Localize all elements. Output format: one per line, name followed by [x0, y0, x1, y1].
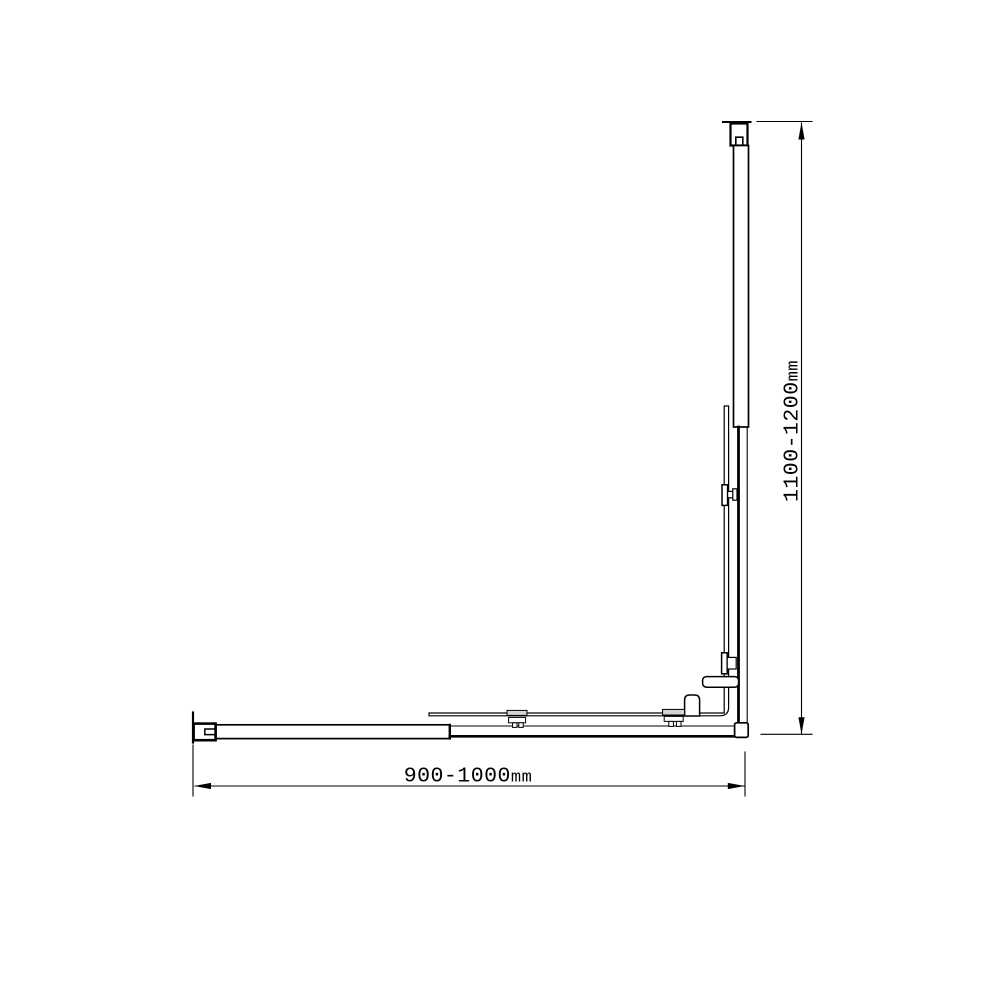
bottom-glass-clamp-right-pad: [663, 709, 685, 715]
corner-connector-block: [735, 723, 749, 738]
glass-clamp-upper-plate: [722, 485, 728, 506]
corner-bracket: [703, 677, 739, 688]
drawing-canvas: 1100-1200mm 900-1000mm: [0, 0, 1000, 1000]
height-dimension: 1100-1200mm: [757, 122, 812, 735]
bottom-glass-clamp-right-foot-2: [676, 721, 681, 726]
width-dimension-arrow-left-icon: [194, 783, 211, 789]
bottom-glass-clamp-left-foot-1: [513, 723, 517, 728]
bottom-glass-clamp-right-foot-1: [669, 721, 674, 726]
glass-clamp-lower-block: [727, 657, 736, 669]
width-dimension-arrow-right-icon: [728, 783, 745, 789]
width-dimension: 900-1000mm: [193, 745, 745, 796]
corner-post: [685, 695, 700, 716]
bottom-glass-clamp-left-pad: [507, 710, 527, 715]
height-dimension-label: 1100-1200mm: [781, 360, 805, 502]
technical-drawing-page: 1100-1200mm 900-1000mm: [0, 0, 1000, 1000]
vertical-support-bar-outer-tube: [734, 146, 749, 428]
bottom-glass-clamp-right: [663, 709, 685, 726]
bottom-glass-clamp-right-body: [664, 716, 683, 721]
glass-clamp-upper: [722, 485, 737, 506]
glass-clamp-lower-plate: [722, 653, 728, 674]
width-dimension-label: 900-1000mm: [404, 765, 533, 789]
glass-clamp-upper-end-plate: [733, 489, 737, 500]
bottom-glass-clamp-left-foot-2: [519, 723, 523, 728]
height-dimension-arrow-down-icon: [798, 717, 804, 734]
top-mounting-bracket: [731, 124, 748, 146]
height-dimension-arrow-up-icon: [798, 122, 804, 139]
glass-panel-edge-outline: [429, 406, 729, 716]
bottom-glass-clamp-left: [507, 710, 527, 727]
bottom-glass-clamp-left-body: [509, 717, 526, 722]
bottom-support-bar-outer-tube: [216, 725, 450, 739]
